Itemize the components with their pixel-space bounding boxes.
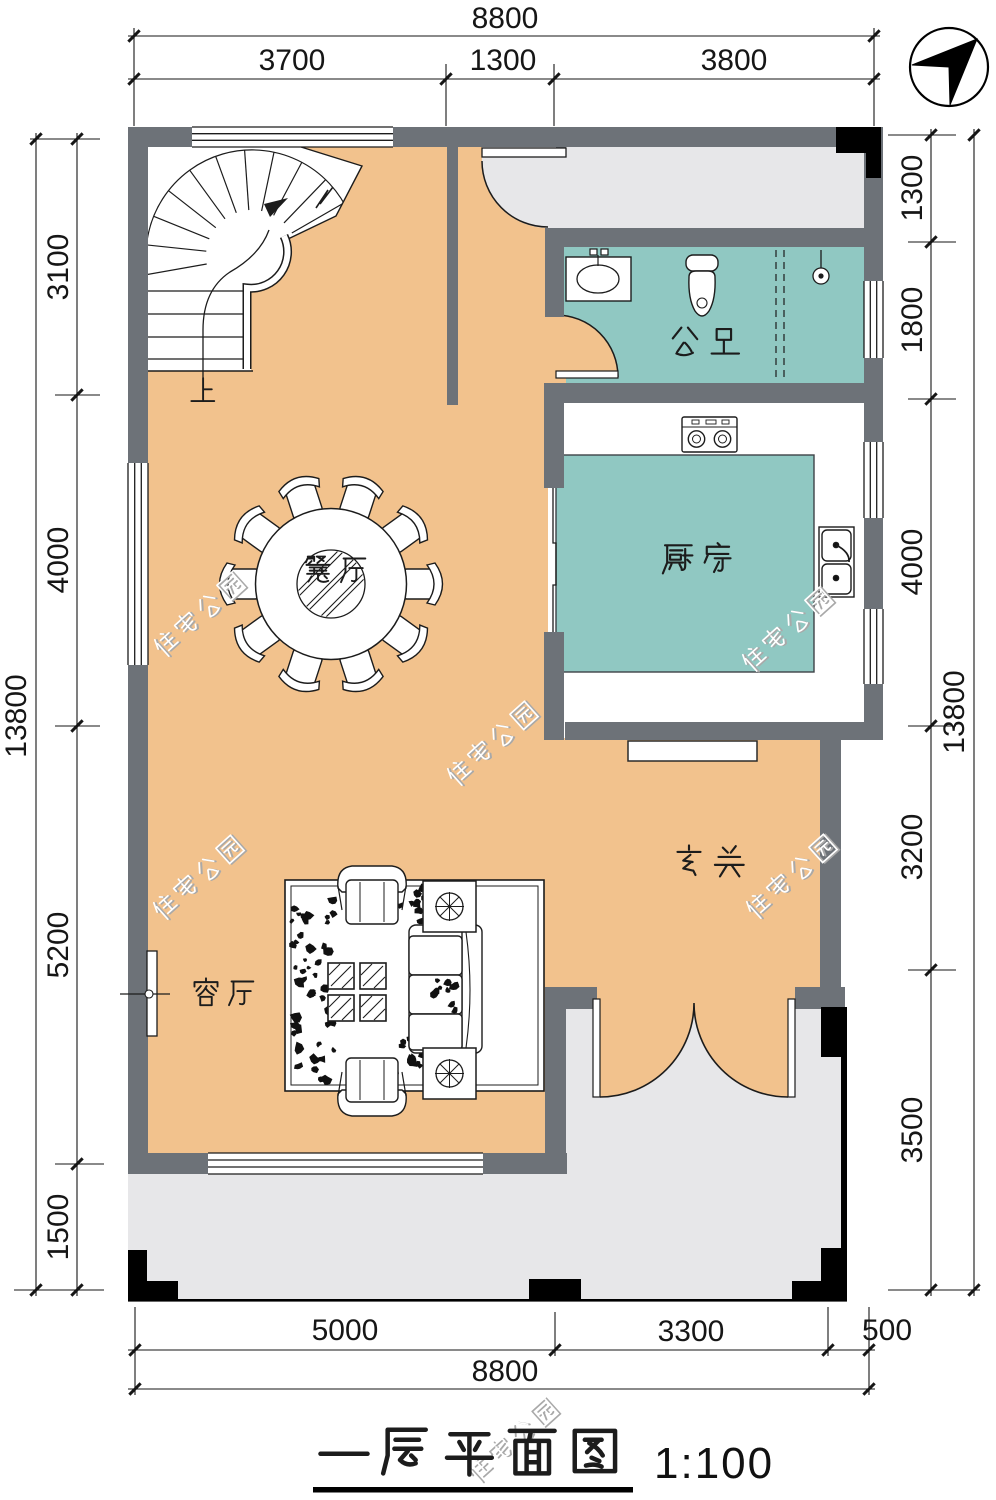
svg-text:3300: 3300 (658, 1315, 725, 1348)
svg-text:1:100: 1:100 (654, 1439, 774, 1488)
svg-text:13800: 13800 (938, 670, 971, 753)
svg-text:1300: 1300 (896, 155, 929, 222)
svg-text:3100: 3100 (42, 234, 75, 301)
svg-text:5200: 5200 (42, 912, 75, 979)
svg-text:3500: 3500 (896, 1097, 929, 1164)
svg-text:4000: 4000 (896, 529, 929, 596)
svg-text:1800: 1800 (896, 287, 929, 354)
svg-text:8800: 8800 (472, 1355, 539, 1388)
svg-text:3800: 3800 (701, 44, 768, 77)
svg-text:3700: 3700 (259, 44, 326, 77)
svg-text:4000: 4000 (42, 527, 75, 594)
svg-text:3200: 3200 (896, 814, 929, 881)
svg-text:1500: 1500 (42, 1194, 75, 1261)
svg-text:13800: 13800 (0, 674, 33, 757)
svg-text:1300: 1300 (470, 44, 537, 77)
svg-text:5000: 5000 (312, 1314, 379, 1347)
svg-text:500: 500 (862, 1314, 912, 1347)
svg-text:8800: 8800 (472, 2, 539, 35)
